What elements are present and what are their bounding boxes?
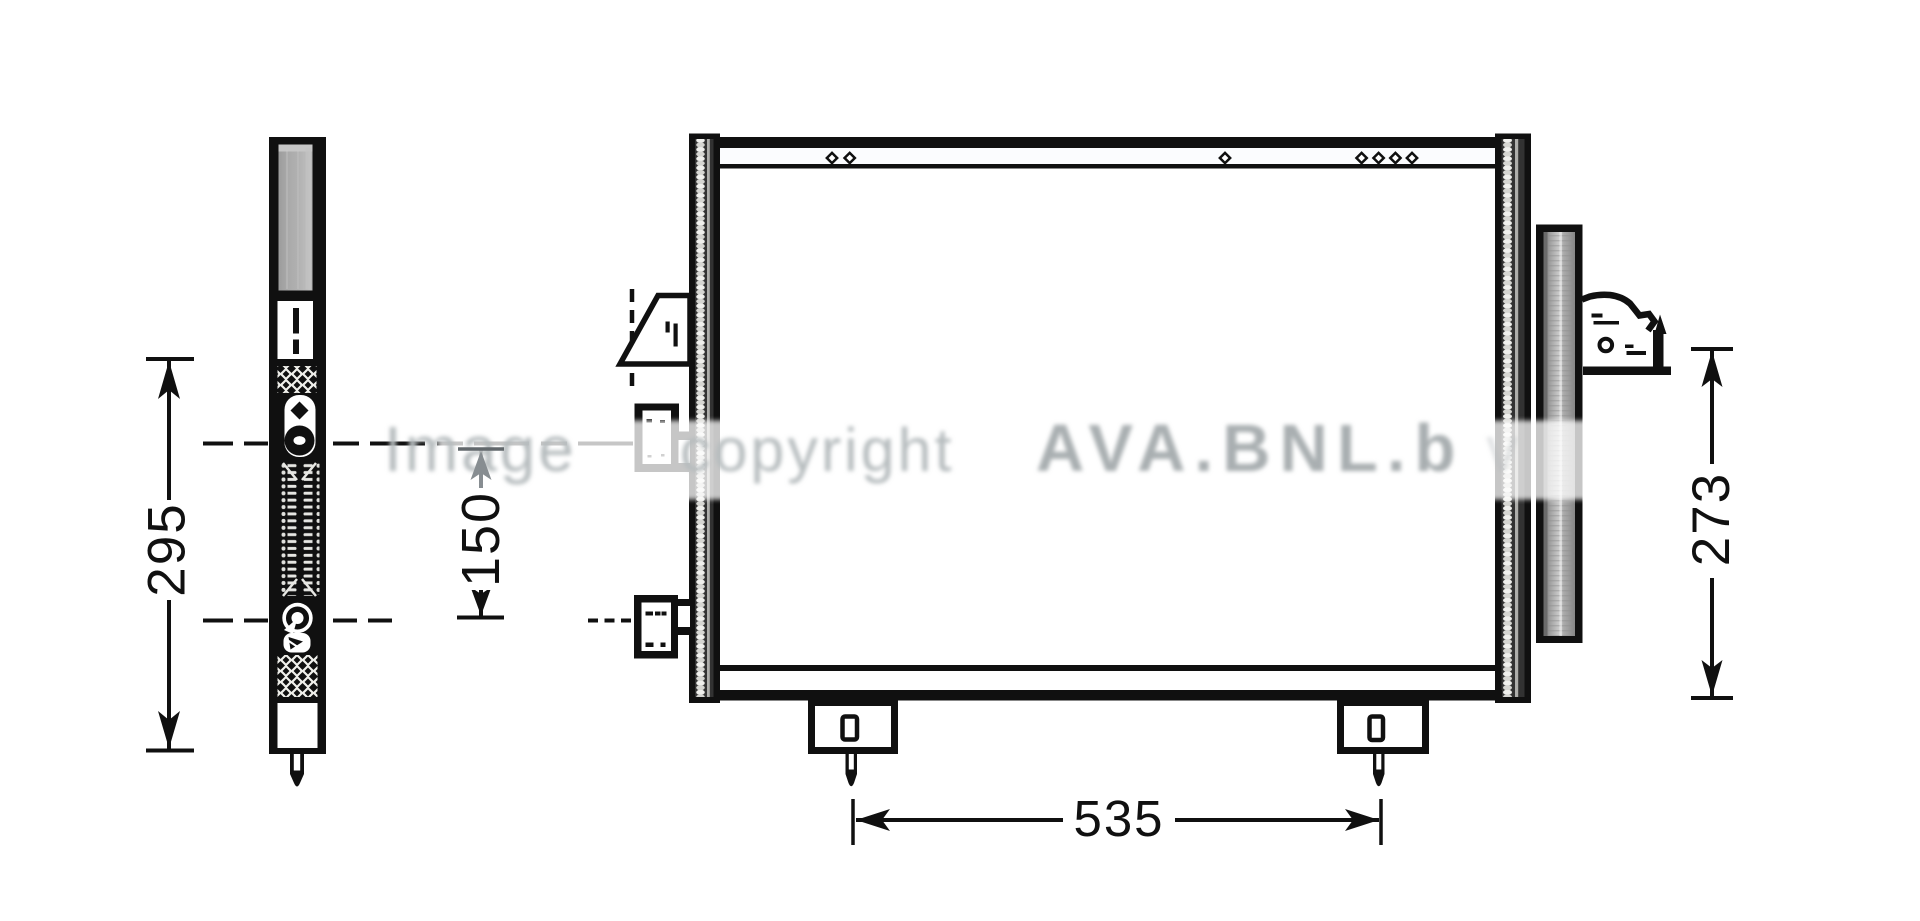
svg-text:273: 273 xyxy=(1682,472,1741,566)
svg-text:535: 535 xyxy=(1073,790,1164,847)
svg-text:AVA.BNL.b: AVA.BNL.b xyxy=(1036,411,1464,486)
svg-text:150: 150 xyxy=(451,491,511,587)
svg-text:v: v xyxy=(1486,413,1518,485)
svg-text:copyright: copyright xyxy=(680,416,955,484)
svg-text:295: 295 xyxy=(138,502,197,596)
